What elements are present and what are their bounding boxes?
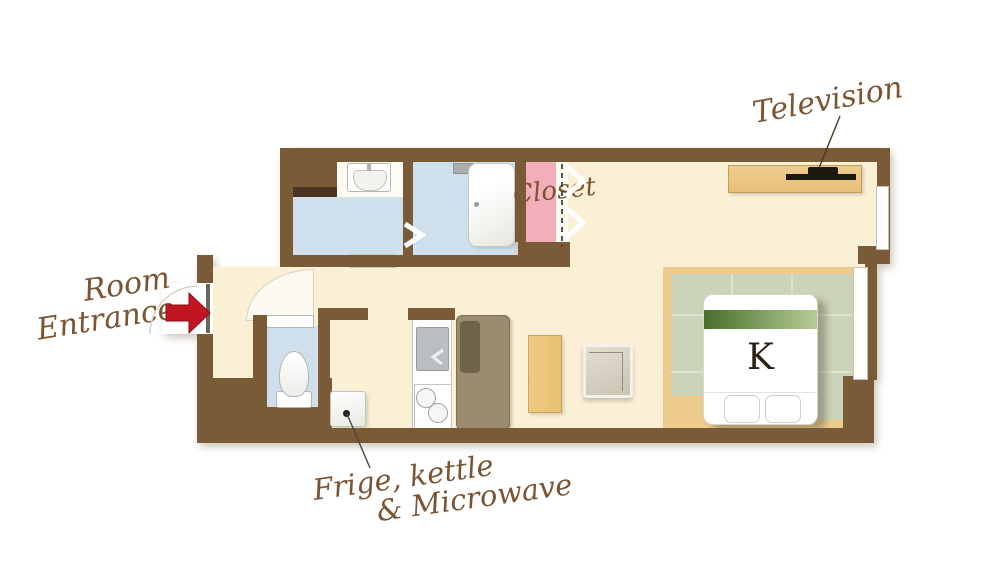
- bed-runner: [704, 310, 817, 329]
- fridge-unit: [330, 391, 366, 427]
- fridge-leader-dot: [343, 410, 350, 417]
- bed: K: [703, 294, 818, 425]
- window: [876, 186, 889, 250]
- vanity-counter: [292, 186, 337, 197]
- wall-strip-bottom: [280, 255, 570, 267]
- washbasin-faucet: [367, 163, 371, 171]
- wall-bottom: [197, 428, 866, 443]
- wall-nook-stub: [318, 308, 368, 320]
- platform-step: [663, 396, 707, 430]
- wall-kitchen-stub: [408, 308, 455, 320]
- kitchen-sink: [416, 327, 449, 371]
- toilet-door: [266, 315, 314, 328]
- wall-vanity-corner: [293, 162, 337, 187]
- washroom-floor: [292, 197, 403, 256]
- wall-under-closet: [518, 242, 570, 256]
- entrance-gap: [195, 283, 213, 334]
- wall-bath-divider: [403, 162, 413, 256]
- wall-strip-left: [280, 148, 293, 267]
- stove-burner-icon: [428, 403, 448, 423]
- toilet-icon: [279, 351, 309, 397]
- cabinet-inset: [460, 321, 480, 373]
- entrance-door-leaf: [206, 284, 210, 333]
- bed-seam: [704, 392, 817, 393]
- wall-top: [280, 148, 890, 162]
- window: [853, 267, 868, 380]
- wall-toilet-right: [318, 308, 330, 428]
- pillow: [765, 395, 801, 423]
- tv-icon-base: [786, 174, 856, 180]
- pillow: [724, 395, 760, 423]
- bathtub-handle: [474, 202, 479, 207]
- chair-seat-line: [589, 352, 623, 391]
- dining-table: [528, 335, 562, 413]
- wall-toilet-left: [253, 315, 267, 428]
- floor-plan-page: K: [0, 0, 1000, 566]
- bed-size-label: K: [704, 337, 817, 378]
